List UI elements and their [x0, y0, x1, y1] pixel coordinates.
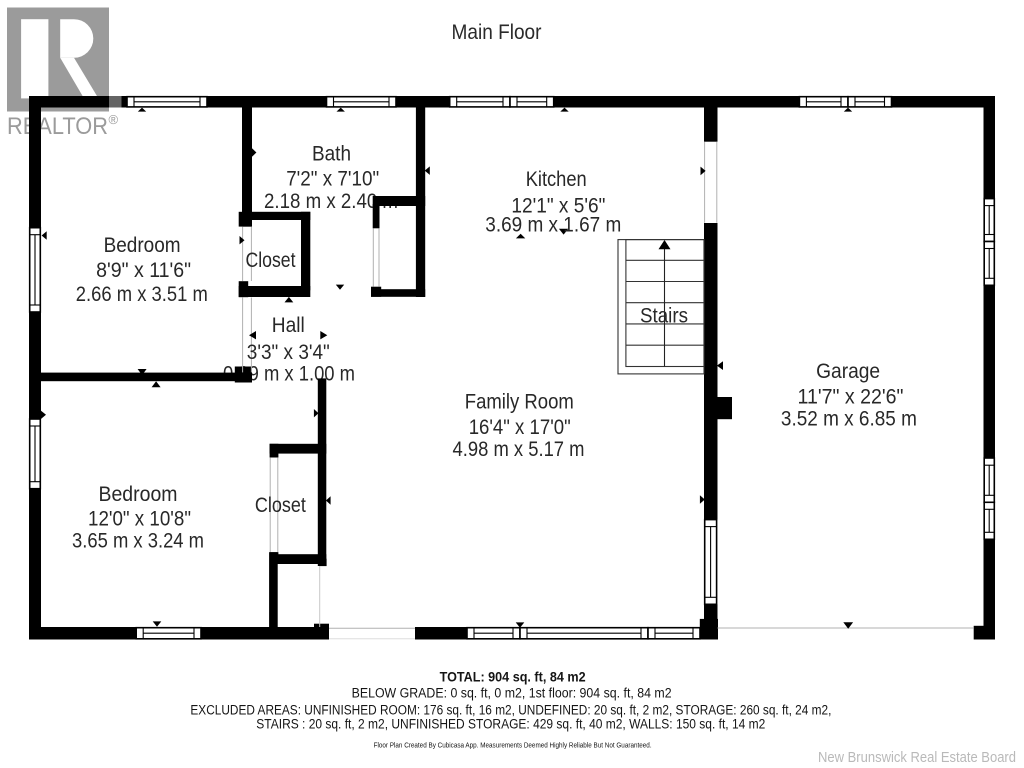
svg-text:Floor Plan Created By Cubicasa: Floor Plan Created By Cubicasa App. Meas…: [374, 741, 652, 750]
svg-text:Closet: Closet: [255, 493, 306, 517]
svg-text:Garage: Garage: [816, 359, 880, 383]
svg-text:Family Room: Family Room: [465, 390, 574, 414]
svg-text:16'4" x 17'0": 16'4" x 17'0": [469, 415, 571, 439]
svg-text:3'3" x 3'4": 3'3" x 3'4": [247, 340, 330, 364]
svg-text:EXCLUDED AREAS: UNFINISHED ROO: EXCLUDED AREAS: UNFINISHED ROOM: 176 sq.…: [190, 702, 831, 717]
svg-text:STAIRS : 20 sq. ft, 2 m2, UNFI: STAIRS : 20 sq. ft, 2 m2, UNFINISHED STO…: [256, 716, 765, 731]
svg-text:New Brunswick Real Estate Boar: New Brunswick Real Estate Board: [818, 750, 1016, 766]
svg-text:11'7" x 22'6": 11'7" x 22'6": [798, 384, 904, 408]
svg-text:8'9" x 11'6": 8'9" x 11'6": [96, 258, 191, 282]
svg-text:Main Floor: Main Floor: [452, 20, 542, 44]
svg-text:TOTAL: 904 sq. ft, 84 m2: TOTAL: 904 sq. ft, 84 m2: [440, 670, 586, 685]
svg-text:REALTOR: REALTOR: [7, 113, 108, 140]
svg-text:3.52 m x 6.85 m: 3.52 m x 6.85 m: [781, 406, 917, 430]
svg-text:7'2" x 7'10": 7'2" x 7'10": [286, 167, 379, 191]
svg-text:Bedroom: Bedroom: [104, 233, 181, 257]
svg-text:BELOW GRADE: 0 sq. ft, 0 m2, 1: BELOW GRADE: 0 sq. ft, 0 m2, 1st floor: …: [352, 686, 672, 701]
svg-text:3.65 m x 3.24 m: 3.65 m x 3.24 m: [72, 528, 204, 552]
svg-text:4.98 m x 5.17 m: 4.98 m x 5.17 m: [453, 437, 585, 461]
svg-text:®: ®: [109, 112, 119, 127]
svg-text:Stairs: Stairs: [640, 304, 688, 328]
svg-text:Hall: Hall: [272, 313, 305, 337]
svg-text:3.69 m x 1.67 m: 3.69 m x 1.67 m: [485, 213, 621, 237]
svg-text:Closet: Closet: [246, 248, 296, 272]
svg-text:2.66 m x 3.51 m: 2.66 m x 3.51 m: [76, 282, 208, 306]
svg-text:Kitchen: Kitchen: [526, 167, 587, 191]
svg-text:12'0" x 10'8": 12'0" x 10'8": [88, 506, 191, 530]
svg-text:Bedroom: Bedroom: [99, 482, 178, 506]
svg-text:Bath: Bath: [312, 142, 351, 166]
